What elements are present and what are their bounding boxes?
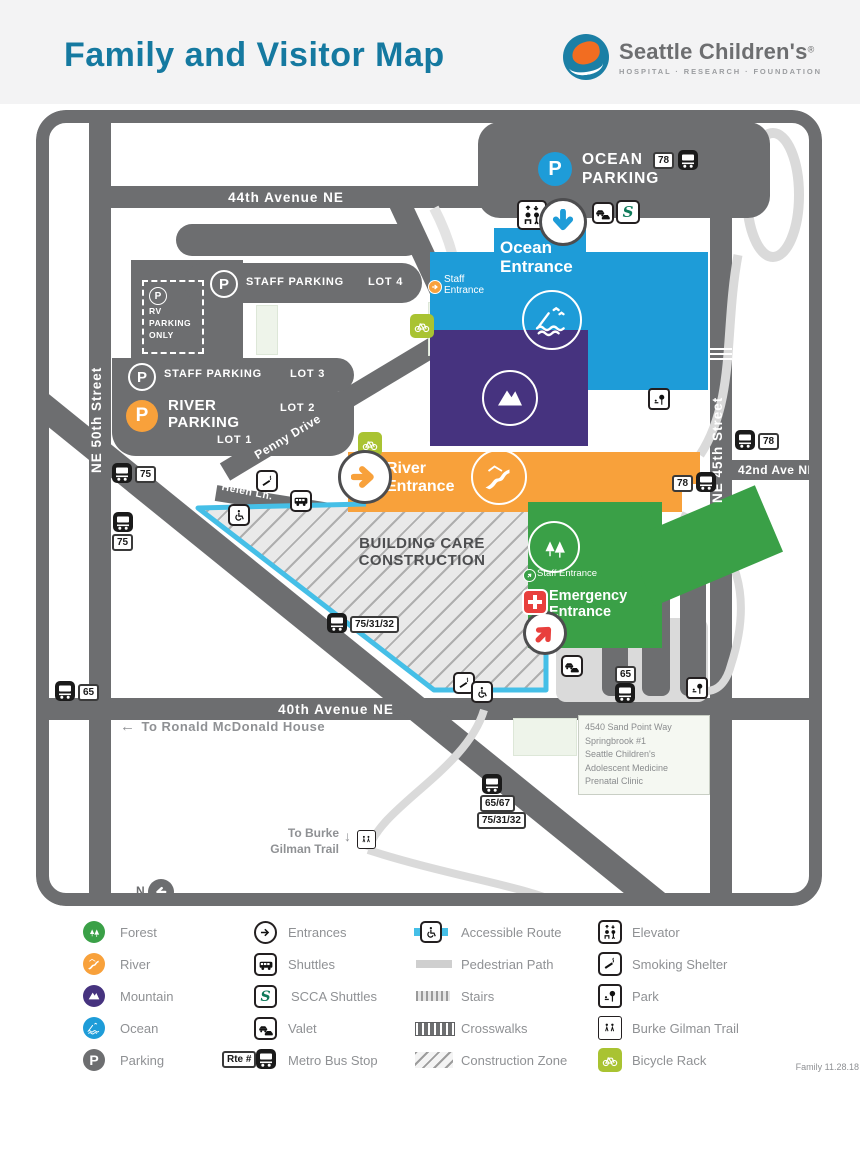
- registered-mark: ®: [808, 44, 815, 54]
- bus-stop-icon: [735, 430, 755, 450]
- legend-label-pedestrian: Pedestrian Path: [461, 957, 554, 972]
- compass-n-label: N: [136, 884, 145, 898]
- street-label-40th: 40th Avenue NE: [206, 702, 466, 717]
- legend-label-parking: Parking: [120, 1053, 164, 1068]
- legend-label-forest: Forest: [120, 925, 157, 940]
- street-label-ne-50th: NE 50th Street: [89, 280, 111, 560]
- smoking-legend-icon: [598, 952, 622, 976]
- legend-label-smoking: Smoking Shelter: [632, 957, 727, 972]
- legend-label-shuttles: Shuttles: [288, 957, 335, 972]
- down-arrow-icon: ↓: [344, 828, 351, 844]
- river-legend-icon: [83, 953, 105, 975]
- emergency-cross-icon: [522, 589, 548, 615]
- logo-name: Seattle Children's: [619, 39, 808, 64]
- valet-icon: [592, 202, 614, 224]
- burke-legend-icon: [598, 1016, 622, 1040]
- staff-entrance-ocean-arrow: [428, 280, 442, 294]
- street-label-42nd: 42nd Ave NE: [732, 463, 822, 477]
- legend: Forest River Mountain Ocean P Parking En…: [36, 908, 822, 1088]
- river-entrance-marker: [338, 450, 392, 504]
- scca-shuttle-icon: S: [616, 200, 640, 224]
- accessible-route-icon: [471, 681, 493, 703]
- ocean-legend-icon: [83, 1017, 105, 1039]
- legend-label-bicycle: Bicycle Rack: [632, 1053, 706, 1068]
- bus-route-label: 75: [112, 534, 133, 551]
- accessible-route-icon: [228, 504, 250, 526]
- accessible-legend-icon: [420, 921, 442, 943]
- bus-route-label: 78: [672, 475, 693, 492]
- crosswalks-swatch: [415, 1022, 455, 1036]
- bus-stop-icon: [112, 463, 132, 483]
- legend-label-valet: Valet: [288, 1021, 317, 1036]
- construction-swatch: [415, 1052, 453, 1068]
- legend-label-entrances: Entrances: [288, 925, 347, 940]
- legend-label-river: River: [120, 957, 150, 972]
- metro-bus-legend-icon: [256, 1049, 276, 1069]
- park-icon: [648, 388, 670, 410]
- bus-stop-icon: [696, 472, 716, 492]
- bus-route-label: 75: [135, 466, 156, 483]
- bus-stop-icon: [327, 613, 347, 633]
- legend-label-stairs: Stairs: [461, 989, 494, 1004]
- ocean-entrance-marker: [539, 198, 587, 246]
- bus-stop-icon: [55, 681, 75, 701]
- mountain-legend-icon: [83, 985, 105, 1007]
- bus-route-label: 65/67: [480, 795, 515, 812]
- valet-icon: [561, 655, 583, 677]
- bus-stop-icon: [113, 512, 133, 532]
- rte-number-box: Rte #: [222, 1051, 256, 1068]
- legend-label-burke: Burke Gilman Trail: [632, 1021, 739, 1036]
- emergency-entrance-marker: [523, 611, 567, 655]
- smoking-shelter-icon: [256, 470, 278, 492]
- burke-gilman-trail-icon: [357, 830, 376, 849]
- legend-label-park: Park: [632, 989, 659, 1004]
- compass-icon: [148, 879, 174, 905]
- map-version: Family 11.28.18: [759, 1062, 859, 1072]
- street-label-44th: 44th Avenue NE: [156, 190, 416, 205]
- staff-entrance-forest-arrow: [523, 569, 536, 582]
- accessible-route: [36, 110, 822, 906]
- parking-legend-icon: P: [83, 1049, 105, 1071]
- elevator-legend-icon: [598, 920, 622, 944]
- forest-legend-icon: [83, 921, 105, 943]
- ronald-mcdonald-note: ←To Ronald McDonald House: [120, 718, 325, 735]
- legend-label-metro: Metro Bus Stop: [288, 1053, 378, 1068]
- bus-route-label: 78: [758, 433, 779, 450]
- bus-stop-icon: [615, 683, 635, 703]
- seattle-childrens-logo: Seattle Children's® HOSPITAL · RESEARCH …: [563, 34, 822, 80]
- burke-gilman-note: To BurkeGilman Trail: [261, 826, 339, 857]
- legend-label-ocean: Ocean: [120, 1021, 158, 1036]
- park-icon: [686, 677, 708, 699]
- park-legend-icon: [598, 984, 622, 1008]
- pedestrian-path-swatch: [416, 960, 452, 968]
- left-arrow-icon: ←: [120, 718, 136, 735]
- page-title: Family and Visitor Map: [64, 36, 445, 75]
- legend-label-accessible: Accessible Route: [461, 925, 561, 940]
- legend-label-crosswalks: Crosswalks: [461, 1021, 527, 1036]
- legend-label-construction: Construction Zone: [461, 1053, 567, 1068]
- bus-route-label: 65: [78, 684, 99, 701]
- bus-stop-icon: [678, 150, 698, 170]
- bus-stop-icon: [482, 774, 502, 794]
- bus-route-label: 65: [615, 666, 636, 683]
- legend-label-elevator: Elevator: [632, 925, 680, 940]
- logo-tagline: HOSPITAL · RESEARCH · FOUNDATION: [619, 67, 822, 76]
- logo-icon: [563, 34, 609, 80]
- header: Family and Visitor Map Seattle Children'…: [0, 0, 860, 104]
- entrances-legend-icon: [254, 921, 277, 944]
- bus-route-label: 75/31/32: [477, 812, 526, 829]
- bus-route-label: 78: [653, 152, 674, 169]
- legend-label-scca: SCCA Shuttles: [291, 989, 377, 1004]
- bus-route-label: 75/31/32: [350, 616, 399, 633]
- shuttle-icon: [290, 490, 312, 512]
- stairs-swatch: [416, 991, 450, 1001]
- campus-map: BUILDING CARE CONSTRUCTION P OCEAN PARKI…: [36, 110, 822, 906]
- page: Family and Visitor Map Seattle Children'…: [0, 0, 860, 1154]
- valet-legend-icon: [254, 1017, 277, 1040]
- bicycle-rack-icon: [410, 314, 434, 338]
- scca-legend-icon: S: [254, 985, 277, 1008]
- bicycle-legend-icon: [598, 1048, 622, 1072]
- shuttles-legend-icon: [254, 953, 277, 976]
- legend-label-mountain: Mountain: [120, 989, 173, 1004]
- street-label-ne-45th: NE 45th Street: [710, 310, 732, 590]
